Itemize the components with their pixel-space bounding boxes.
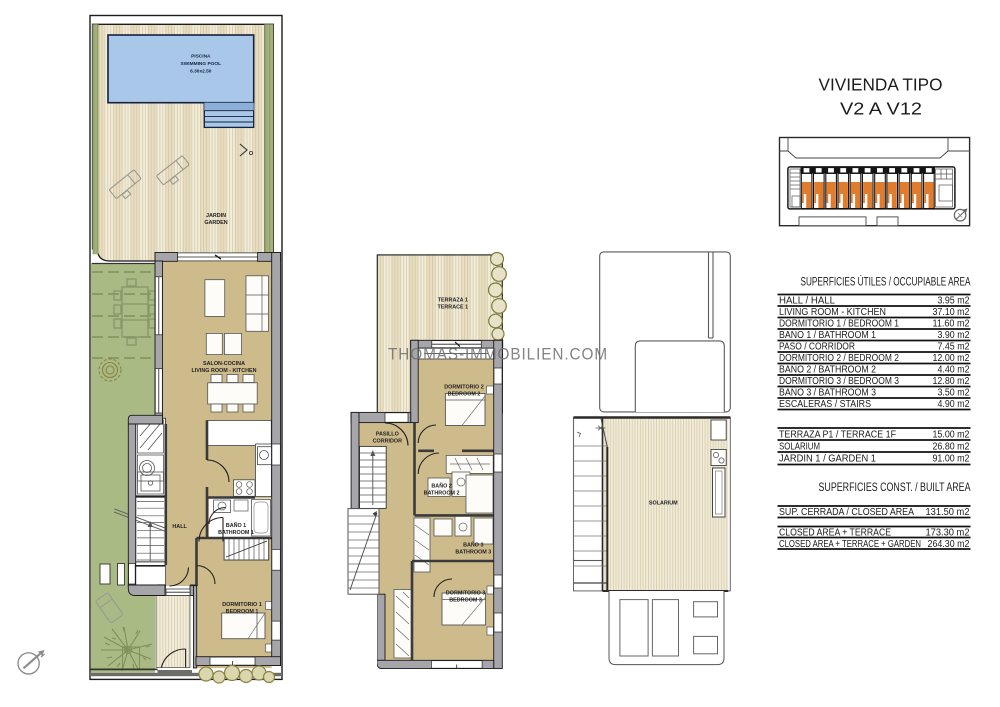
svg-text:BEDROOM 2: BEDROOM 2 [448,392,481,398]
svg-text:37.10 m2: 37.10 m2 [933,307,970,318]
svg-text:BEDROOM 3: BEDROOM 3 [449,598,482,604]
svg-text:11.60 m2: 11.60 m2 [933,319,970,330]
svg-text:BAÑO 2 / BATHROOM 2: BAÑO 2 / BATHROOM 2 [779,363,876,376]
svg-text:PISCINA: PISCINA [191,54,211,60]
svg-text:CLOSED AREA + TERRACE + GARDEN: CLOSED AREA + TERRACE + GARDEN [779,539,921,550]
svg-text:DORMITORIO 3 / BEDROOM 3: DORMITORIO 3 / BEDROOM 3 [779,376,899,387]
svg-text:12.00 m2: 12.00 m2 [933,353,970,364]
svg-text:TERRAZA 1: TERRAZA 1 [438,298,468,304]
svg-text:BATHROOM 2: BATHROOM 2 [424,491,460,497]
svg-text:173.30 m2: 173.30 m2 [926,528,970,539]
svg-text:SOLARIUM: SOLARIUM [649,501,678,507]
svg-text:CLOSED AREA + TERRACE: CLOSED AREA + TERRACE [779,528,891,539]
svg-text:4.40 m2: 4.40 m2 [938,365,970,376]
svg-text:BAÑO 2: BAÑO 2 [431,483,451,490]
svg-text:HALL: HALL [172,524,187,530]
svg-text:SUPERFICIES CONST. / BUILT AR: SUPERFICIES CONST. / BUILT AREA [819,482,971,494]
svg-text:4.90 m2: 4.90 m2 [938,399,970,410]
svg-text:TERRACE 1: TERRACE 1 [438,305,469,311]
svg-text:LIVING ROOM - KITCHEN: LIVING ROOM - KITCHEN [779,307,886,318]
svg-text:BAÑO 3: BAÑO 3 [463,542,483,549]
svg-text:ESCALERAS / STAIRS: ESCALERAS / STAIRS [779,399,871,410]
svg-text:DORMITORIO 3: DORMITORIO 3 [446,591,485,597]
svg-text:V2 A V12: V2 A V12 [840,98,922,118]
svg-text:LIVING ROOM - KITCHEN: LIVING ROOM - KITCHEN [192,368,257,374]
svg-text:BAÑO 3 / BATHROOM 3: BAÑO 3 / BATHROOM 3 [779,386,876,399]
svg-text:CORRIDOR: CORRIDOR [373,439,402,445]
svg-text:BAÑO 1: BAÑO 1 [226,522,246,529]
svg-text:26.80 m2: 26.80 m2 [933,441,970,452]
svg-text:BAÑO 1 / BATHROOM 1: BAÑO 1 / BATHROOM 1 [779,328,876,341]
svg-text:VIVIENDA TIPO: VIVIENDA TIPO [819,74,943,94]
svg-text:131.50 m2: 131.50 m2 [926,507,970,518]
svg-text:264.30 m2: 264.30 m2 [928,539,970,550]
svg-text:DORMITORIO 1: DORMITORIO 1 [222,602,261,608]
svg-text:SWIMMING POOL: SWIMMING POOL [181,61,222,67]
svg-text:SOLARIUM: SOLARIUM [779,441,820,452]
svg-text:DORMITORIO 1 / BEDROOM 1: DORMITORIO 1 / BEDROOM 1 [779,319,899,330]
svg-text:SUP. CERRADA / CLOSED AREA: SUP. CERRADA / CLOSED AREA [779,507,914,518]
svg-text:PASO / CORRIDOR: PASO / CORRIDOR [779,342,855,353]
svg-text:TERRAZA P1 / TERRACE 1F: TERRAZA P1 / TERRACE 1F [779,429,896,440]
svg-text:SALON-COCINA: SALON-COCINA [203,361,245,367]
svg-text:3.90 m2: 3.90 m2 [938,330,970,341]
svg-text:BATHROOM 3: BATHROOM 3 [455,550,491,556]
svg-text:DORMITORIO 2 / BEDROOM 2: DORMITORIO 2 / BEDROOM 2 [779,353,899,364]
svg-text:HALL / HALL: HALL / HALL [779,296,835,307]
svg-text:7.45 m2: 7.45 m2 [938,342,970,353]
svg-text:DORMITORIO 2: DORMITORIO 2 [444,385,483,391]
svg-text:JARDIN 1 / GARDEN 1: JARDIN 1 / GARDEN 1 [779,453,876,464]
svg-text:BATHROOM 1: BATHROOM 1 [218,530,254,536]
svg-text:3.50 m2: 3.50 m2 [938,388,970,399]
svg-text:JARDIN: JARDIN [206,213,226,219]
svg-text:15.00 m2: 15.00 m2 [933,429,970,440]
svg-text:12.80 m2: 12.80 m2 [933,376,970,387]
svg-text:PASILLO: PASILLO [376,432,399,438]
svg-text:BEDROOM 1: BEDROOM 1 [226,609,259,615]
svg-text:6.30x2.50: 6.30x2.50 [190,69,212,75]
svg-text:91.00 m2: 91.00 m2 [933,453,970,464]
svg-text:SUPERFICIES ÚTILES / OCCUPIABL: SUPERFICIES ÚTILES / OCCUPIABLE AREA [801,276,971,289]
svg-text:3.95 m2: 3.95 m2 [938,296,970,307]
svg-text:GARDEN: GARDEN [204,220,227,226]
svg-text:THOMAS-IMMOBILIEN.COM: THOMAS-IMMOBILIEN.COM [388,345,608,364]
